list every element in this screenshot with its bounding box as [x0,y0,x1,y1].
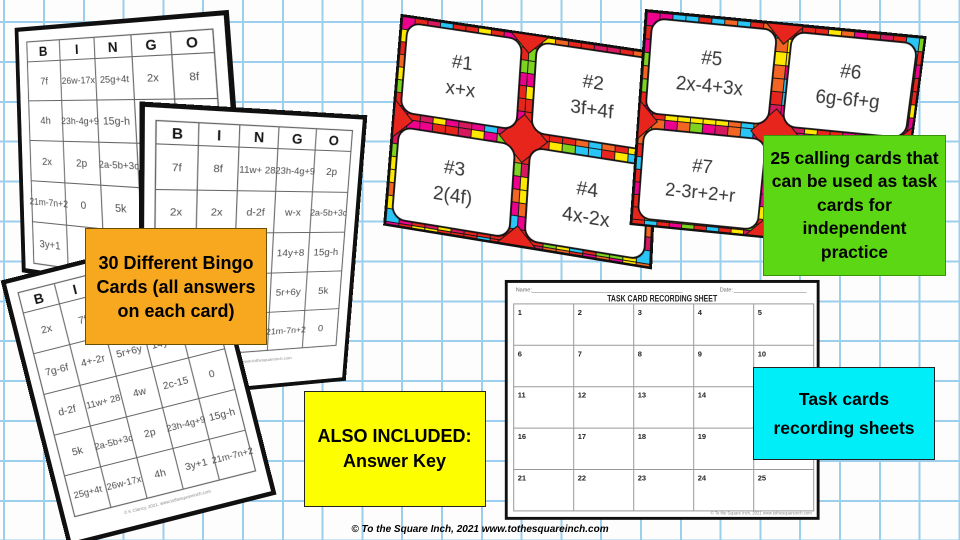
svg-text:2p: 2p [76,157,88,169]
svg-text:TASK CARD RECORDING SHEET: TASK CARD RECORDING SHEET [607,293,717,303]
svg-text:5k: 5k [318,285,329,296]
svg-text:2x: 2x [42,155,53,167]
svg-text:15g-h: 15g-h [313,246,338,258]
svg-text:6: 6 [518,349,522,358]
svg-text:© To the Square Inch, 2021 ww: © To the Square Inch, 2021 www.tothesqua… [711,510,813,515]
svg-text:12: 12 [578,391,586,400]
svg-text:d-2f: d-2f [246,206,265,218]
svg-text:26w-17x: 26w-17x [61,75,95,86]
svg-text:B: B [172,125,183,142]
svg-text:15g-h: 15g-h [103,115,131,127]
svg-text:5r+6y: 5r+6y [275,286,301,298]
svg-text:x+x: x+x [445,77,476,102]
svg-text:2a-5b+3c: 2a-5b+3c [98,159,139,172]
svg-text:B: B [39,44,48,59]
svg-text:7f: 7f [172,161,182,174]
svg-text:8f: 8f [189,70,200,83]
svg-text:N: N [107,40,117,56]
svg-text:11: 11 [518,391,526,400]
svg-text:O: O [186,35,199,52]
svg-text:7: 7 [578,349,582,358]
svg-text:#7: #7 [691,155,713,178]
svg-text:5k: 5k [115,202,128,216]
svg-text:25: 25 [758,474,766,483]
svg-text:23: 23 [638,474,646,483]
svg-text:8: 8 [638,349,642,358]
svg-text:10: 10 [758,349,766,358]
svg-text:Name:: Name: [516,287,533,293]
svg-text:5: 5 [758,308,762,317]
svg-text:7f: 7f [40,75,49,86]
svg-text:0: 0 [80,199,86,212]
svg-text:25g+4t: 25g+4t [100,73,130,85]
svg-text:O: O [328,133,339,149]
svg-text:2x: 2x [170,205,183,218]
svg-text:#5: #5 [700,47,723,71]
svg-text:9: 9 [698,349,702,358]
svg-text:11w+ 28: 11w+ 28 [239,164,276,176]
svg-text:4h: 4h [40,115,51,126]
svg-text:#4: #4 [576,177,599,202]
svg-text:21: 21 [518,474,526,483]
svg-text:I: I [75,42,79,57]
svg-text:19: 19 [698,432,706,441]
svg-text:I: I [217,127,222,144]
svg-text:#6: #6 [839,60,863,84]
svg-text:G: G [292,131,303,147]
svg-text:Date:: Date: [720,287,734,293]
svg-text:2x: 2x [147,71,160,84]
svg-text:22: 22 [578,474,586,483]
svg-text:#3: #3 [443,156,466,180]
svg-text:2: 2 [578,308,582,317]
svg-text:16: 16 [518,432,526,441]
svg-text:23h-4g+9: 23h-4g+9 [275,165,315,177]
svg-text:N: N [254,129,265,146]
svg-text:2x: 2x [211,206,224,218]
svg-text:2p: 2p [326,165,338,177]
svg-text:w-x: w-x [284,206,302,218]
svg-text:23h-4g+9: 23h-4g+9 [61,116,100,127]
svg-text:#1: #1 [451,51,473,74]
svg-text:24: 24 [698,474,707,483]
svg-text:14: 14 [698,391,707,400]
svg-text:1: 1 [518,308,522,317]
svg-text:18: 18 [638,432,646,441]
svg-text:17: 17 [578,432,586,441]
svg-text:0: 0 [318,323,324,334]
svg-text:#2: #2 [582,71,604,95]
svg-text:G: G [145,37,157,53]
svg-text:14y+8: 14y+8 [276,247,304,259]
svg-text:2a-5b+3c: 2a-5b+3c [310,208,348,218]
svg-text:13: 13 [638,391,646,400]
svg-text:8f: 8f [213,162,223,175]
svg-text:3: 3 [638,308,642,317]
